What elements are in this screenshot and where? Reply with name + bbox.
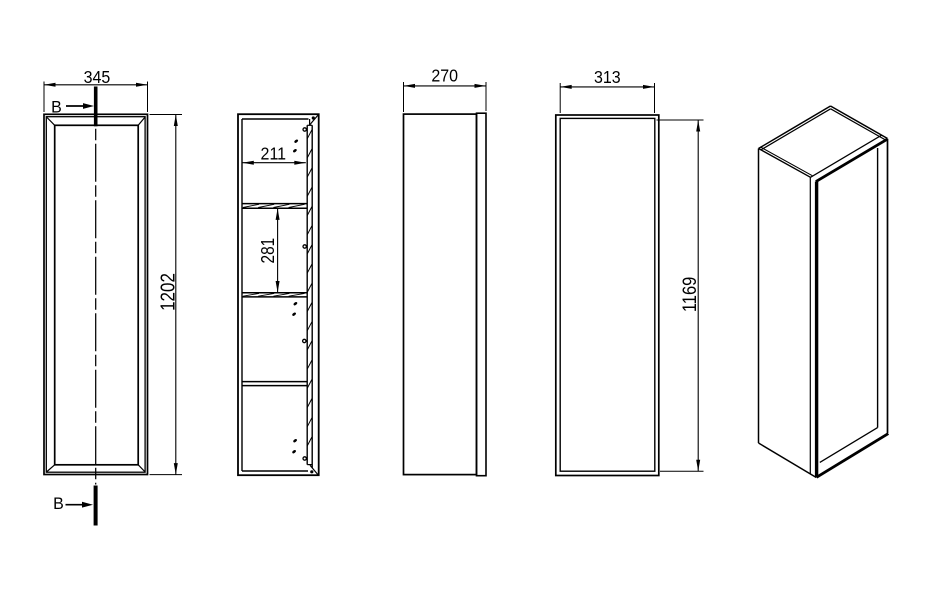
svg-text:345: 345 [84,67,111,87]
svg-text:211: 211 [261,144,286,164]
svg-text:1202: 1202 [156,273,179,311]
svg-text:281: 281 [258,238,279,264]
svg-text:B: B [51,98,62,116]
svg-text:313: 313 [594,67,621,87]
svg-text:B: B [53,495,64,513]
svg-text:270: 270 [431,66,458,86]
svg-text:1169: 1169 [678,277,700,312]
